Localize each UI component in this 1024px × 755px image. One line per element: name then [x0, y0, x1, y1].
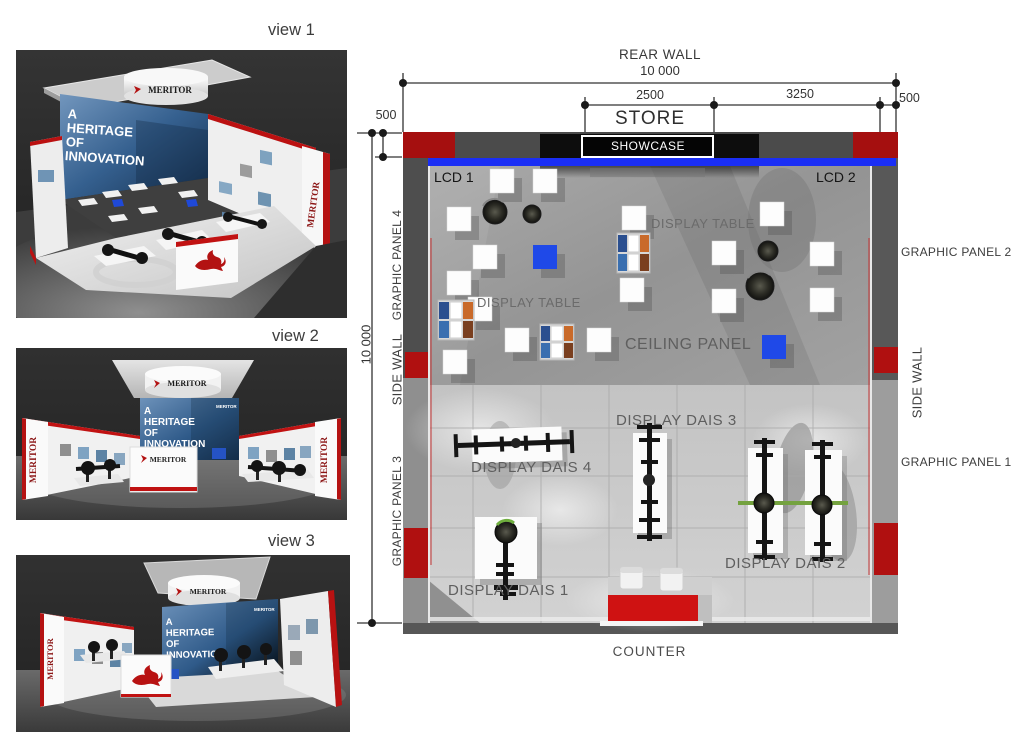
right-wall-red-block	[874, 347, 898, 373]
right-end-wordmark: MERITOR	[320, 437, 330, 483]
chair-back	[660, 568, 683, 574]
blue-ceiling-panel	[762, 335, 786, 359]
left-wall	[30, 136, 68, 258]
right-wall-band-lower	[872, 380, 898, 634]
svg-text:HERITAGE: HERITAGE	[144, 417, 195, 428]
blue-fascia-strip	[428, 158, 896, 166]
right-wall-red-block-2	[874, 523, 898, 575]
svg-text:OF: OF	[166, 639, 180, 650]
display-dais-3-label: DISPLAY DAIS 3	[616, 412, 737, 429]
view-1-render: MERITOR A HERITAGE OF INNOVATION	[16, 50, 347, 318]
rear-wall-label: REAR WALL	[600, 47, 720, 62]
view-1-label: view 1	[268, 21, 315, 40]
wall-mini-wordmark: MERITOR	[254, 607, 275, 612]
dim-side-margin-left: 500	[366, 108, 406, 122]
left-inner-edge	[428, 166, 430, 623]
brand-drum: MERITOR	[168, 575, 240, 606]
left-wall-red-block-2	[404, 528, 428, 578]
counter-label: COUNTER	[592, 644, 707, 659]
ceiling-panel-label: CEILING PANEL	[625, 336, 751, 354]
dim-store-width: 2500	[610, 88, 690, 102]
wall-mini-wordmark: MERITOR	[216, 404, 237, 409]
drum-wordmark: MERITOR	[190, 587, 227, 596]
left-wall-panel	[38, 170, 54, 182]
blue-ceiling-panel	[533, 245, 557, 269]
view-3-render: MERITOR MERITOR A HERITAGE OF INNOVATION…	[16, 555, 350, 732]
left-end-wordmark: MERITOR	[45, 637, 55, 679]
svg-text:A: A	[166, 617, 173, 628]
store-shelf	[590, 168, 705, 177]
left-wall-red-block	[405, 352, 428, 378]
right-end-red-stripe	[323, 152, 330, 252]
display-dais-4-label: DISPLAY DAIS 4	[471, 459, 592, 476]
svg-text:OF: OF	[144, 428, 158, 439]
drum-wordmark: MERITOR	[148, 85, 192, 95]
svg-text:A: A	[144, 406, 151, 417]
display-dais-2-label: DISPLAY DAIS 2	[725, 555, 846, 572]
side-wall-left-label: SIDE WALL	[390, 310, 405, 430]
drum-wordmark: MERITOR	[168, 379, 207, 388]
left-end-wordmark: MERITOR	[29, 437, 39, 483]
graphic-panel-2-label: GRAPHIC PANEL 2	[901, 245, 1012, 259]
lcd-1-label: LCD 1	[434, 169, 474, 185]
dim-total-depth: 10 000	[359, 305, 374, 385]
display-table-label-center: DISPLAY TABLE	[651, 216, 755, 231]
view-3-label: view 3	[268, 532, 315, 551]
brand-drum: MERITOR	[124, 68, 208, 105]
monitor	[212, 448, 226, 459]
display-dais-3	[633, 423, 672, 541]
right-wall-band-upper	[872, 158, 898, 380]
right-inner-edge	[870, 166, 872, 623]
lcd-2-label: LCD 2	[816, 169, 856, 185]
counter	[176, 234, 238, 290]
left-end-red-stripe	[40, 613, 44, 707]
dim-side-margin-right: 500	[899, 91, 920, 105]
store-label: STORE	[585, 108, 715, 130]
corner-block-left	[403, 132, 455, 158]
dim-total-width: 10 000	[600, 63, 720, 78]
svg-text:HERITAGE: HERITAGE	[166, 627, 215, 639]
counter-wordmark: MERITOR	[150, 455, 187, 464]
counter-red-front	[608, 595, 698, 621]
showcase-label: SHOWCASE	[584, 139, 712, 153]
side-wall-right-label: SIDE WALL	[910, 323, 925, 443]
dim-store-to-side: 3250	[760, 87, 840, 101]
chair-back	[620, 567, 643, 573]
corner-block-right	[853, 132, 898, 158]
display-table-label-left: DISPLAY TABLE	[477, 295, 581, 310]
right-end-red-stripe	[337, 418, 341, 500]
counter: MERITOR	[130, 447, 197, 492]
graphic-panel-1-label: GRAPHIC PANEL 1	[901, 455, 1012, 469]
counter	[121, 655, 171, 697]
view-2-label: view 2	[272, 327, 319, 346]
brand-drum: MERITOR	[145, 366, 221, 398]
left-end-red-stripe	[22, 418, 26, 500]
graphic-panel-3-label: GRAPHIC PANEL 3	[390, 426, 404, 596]
left-wall-band-upper	[403, 158, 428, 378]
display-dais-1-label: DISPLAY DAIS 1	[448, 582, 569, 599]
view-2-render: MERITOR MERITOR A HERITAGE OF INNOVATION…	[16, 348, 347, 520]
design-sheet: view 1 view 2 view 3	[0, 0, 1024, 755]
